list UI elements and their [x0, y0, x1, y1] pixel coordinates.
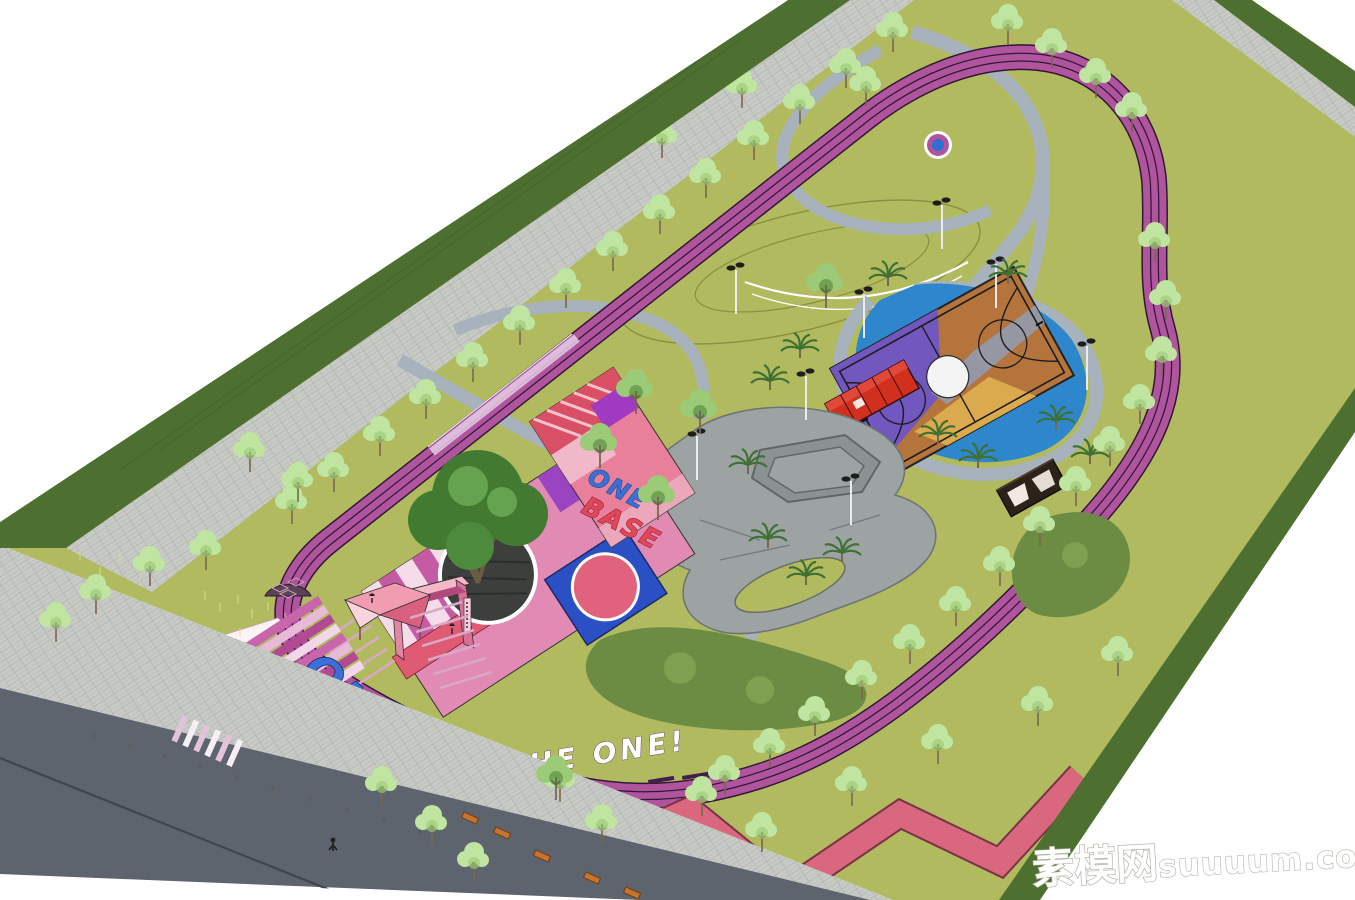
mound-target-marker	[924, 131, 952, 159]
park-render-canvas: ONE BASE	[0, 0, 1355, 900]
watermark-cn-text: 素模网	[1031, 838, 1159, 894]
rendered-scene: ONE BASE	[0, 0, 1355, 900]
